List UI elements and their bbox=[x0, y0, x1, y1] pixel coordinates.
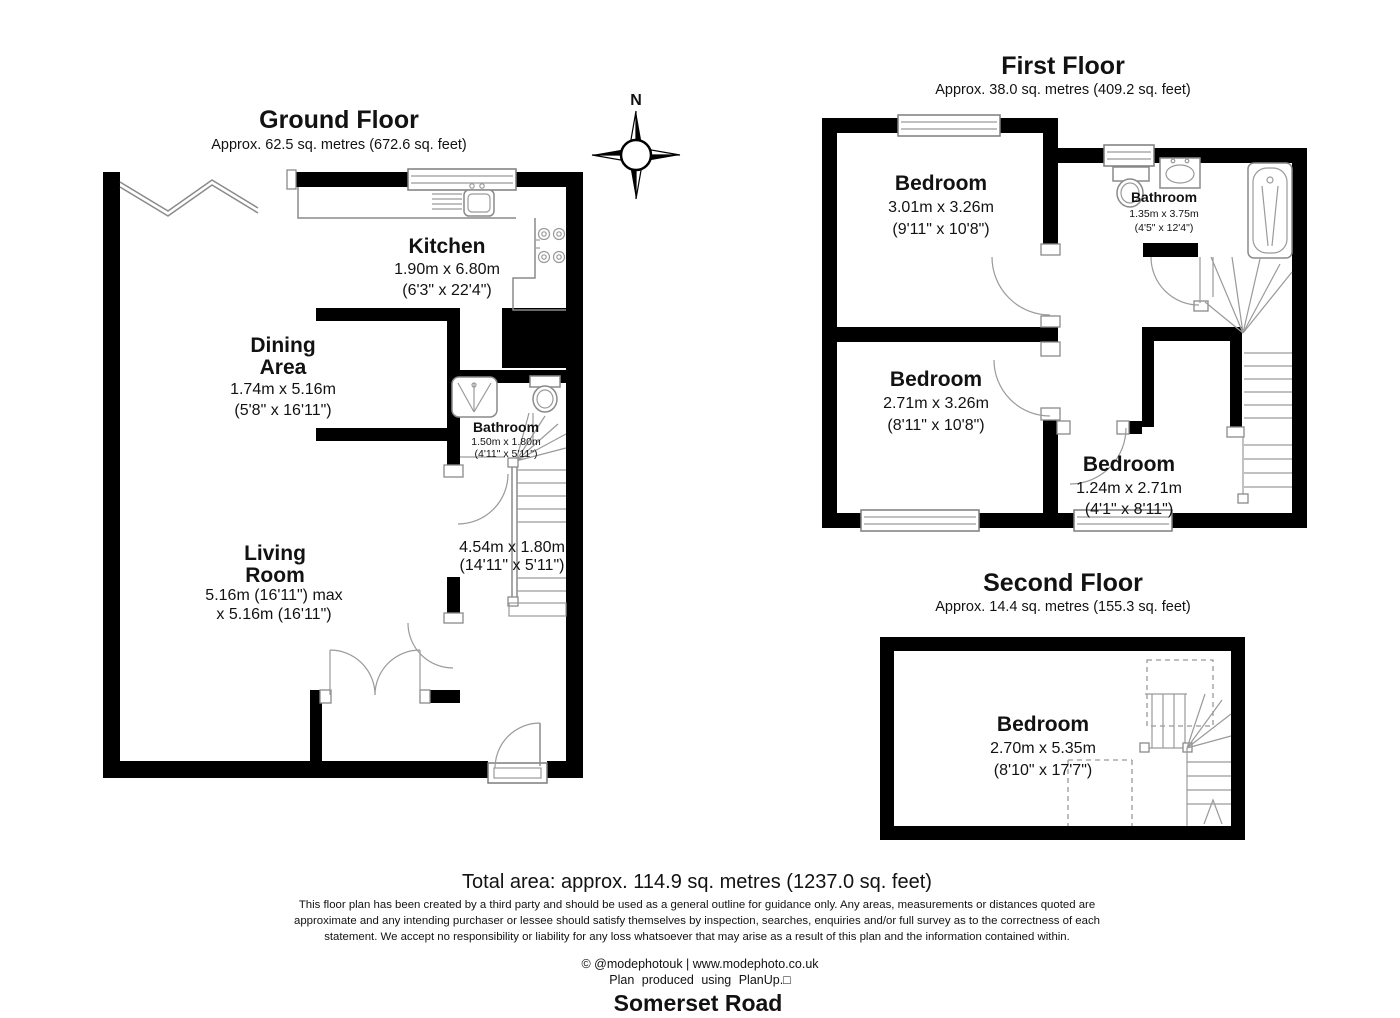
floorplan-page: Ground Floor Approx. 62.5 sq. metres (67… bbox=[0, 0, 1400, 1018]
ff-bathroom-dims-m: 1.35m x 3.75m bbox=[1129, 208, 1199, 220]
hall-door-arc bbox=[458, 474, 508, 524]
ff-bedroom1-name: Bedroom bbox=[895, 172, 987, 195]
ff-bedroom2-dims-m: 2.71m x 3.26m bbox=[883, 395, 989, 412]
hob-icon bbox=[536, 229, 565, 263]
shower-icon bbox=[452, 377, 497, 417]
floorplan-drawing: Ground Floor Approx. 62.5 sq. metres (67… bbox=[0, 0, 1400, 1018]
first-floor-plan: Bedroom 3.01m x 3.26m (9'11" x 10'8") Ba… bbox=[822, 115, 1307, 531]
compass-north-label: N bbox=[630, 92, 642, 109]
disclaimer-line-1: This floor plan has been created by a th… bbox=[299, 899, 1095, 911]
ground-floor-walls bbox=[103, 170, 583, 778]
living-name-2: Room bbox=[245, 564, 305, 587]
ff-bedroom2-dims-ft: (8'11" x 10'8") bbox=[887, 417, 984, 434]
ff-stair-treads bbox=[1244, 353, 1292, 487]
disclaimer-line-2: approximate and any intending purchaser … bbox=[294, 915, 1100, 927]
ground-floor-area: Approx. 62.5 sq. metres (672.6 sq. feet) bbox=[211, 137, 467, 153]
ground-floor-header: Ground Floor Approx. 62.5 sq. metres (67… bbox=[211, 106, 467, 153]
ff-bedroom1-dims-m: 3.01m x 3.26m bbox=[888, 199, 994, 216]
living-dims-ft: x 5.16m (16'11") bbox=[216, 606, 331, 623]
kitchen-dims-ft: (6'3" x 22'4") bbox=[402, 282, 492, 299]
ff-bedroom1-dims-ft: (9'11" x 10'8") bbox=[892, 221, 989, 238]
second-floor-plan: Bedroom 2.70m x 5.35m (8'10" x 17'7") bbox=[880, 637, 1245, 840]
ff-bedroom3-dims-m: 1.24m x 2.71m bbox=[1076, 480, 1182, 497]
kitchen-label: Kitchen 1.90m x 6.80m (6'3" x 22'4") bbox=[394, 235, 500, 299]
second-floor-title: Second Floor bbox=[983, 569, 1143, 597]
first-floor-title: First Floor bbox=[1001, 52, 1125, 80]
gf-doors bbox=[330, 474, 547, 783]
sf-bedroom-name: Bedroom bbox=[997, 713, 1089, 736]
ff-bedroom3-name: Bedroom bbox=[1083, 453, 1175, 476]
living-name-1: Living bbox=[244, 542, 306, 565]
open-boundary-zigzag bbox=[120, 185, 258, 216]
ground-floor-plan: Kitchen 1.90m x 6.80m (6'3" x 22'4") Din… bbox=[103, 169, 583, 783]
gf-bathroom-name: Bathroom bbox=[473, 419, 539, 435]
entrance-door bbox=[488, 723, 547, 783]
hall-dims-m: 4.54m x 1.80m bbox=[459, 539, 565, 556]
sf-staircase bbox=[1140, 694, 1231, 826]
sf-bedroom-dims-ft: (8'10" x 17'7") bbox=[994, 762, 1092, 779]
compass-rose: N bbox=[592, 92, 680, 199]
ff-bedroom3-dims-ft: (4'1" x 8'11") bbox=[1085, 501, 1173, 518]
ff-bedroom2-label: Bedroom 2.71m x 3.26m (8'11" x 10'8") bbox=[883, 368, 989, 434]
bathtub-icon bbox=[1248, 163, 1292, 258]
produced-with-text: Plan produced using PlanUp.□ bbox=[609, 973, 791, 987]
kitchen-window bbox=[408, 169, 516, 190]
ff-bathroom-label: Bathroom 1.35m x 3.75m (4'5" x 12'4") bbox=[1129, 189, 1199, 234]
dining-name-2: Area bbox=[260, 356, 307, 379]
kitchen-dims-m: 1.90m x 6.80m bbox=[394, 261, 500, 278]
sf-bedroom-label: Bedroom 2.70m x 5.35m (8'10" x 17'7") bbox=[990, 713, 1096, 779]
hall-label: 4.54m x 1.80m (14'11" x 5'11") bbox=[459, 539, 565, 574]
restricted-headroom-outline bbox=[1147, 660, 1213, 726]
ff-doors bbox=[992, 257, 1199, 484]
disclaimer-line-3: statement. We accept no responsibility o… bbox=[324, 931, 1070, 943]
gf-bathroom-dims-m: 1.50m x 1.80m bbox=[471, 436, 541, 448]
dining-area-label: Dining Area 1.74m x 5.16m (5'8" x 16'11"… bbox=[230, 334, 336, 419]
ground-floor-title: Ground Floor bbox=[259, 106, 419, 134]
ff-bathroom-name: Bathroom bbox=[1131, 189, 1197, 205]
lobby-door-arc bbox=[408, 623, 453, 668]
sf-stair-treads bbox=[1187, 762, 1231, 804]
address-title: Somerset Road bbox=[614, 990, 783, 1016]
toilet-icon bbox=[530, 376, 560, 412]
ff-bedroom1-door-arc bbox=[992, 257, 1050, 315]
dining-name-1: Dining bbox=[250, 334, 315, 357]
second-floor-header: Second Floor Approx. 14.4 sq. metres (15… bbox=[935, 569, 1191, 615]
first-floor-header: First Floor Approx. 38.0 sq. metres (409… bbox=[935, 52, 1191, 98]
ff-bedroom3-label: Bedroom 1.24m x 2.71m (4'1" x 8'11") bbox=[1076, 453, 1182, 518]
gf-bathroom-dims-ft: (4'11" x 5'11") bbox=[474, 448, 537, 460]
dining-dims-m: 1.74m x 5.16m bbox=[230, 381, 336, 398]
compass-circle bbox=[621, 140, 651, 170]
living-room-label: Living Room 5.16m (16'11") max x 5.16m (… bbox=[205, 542, 342, 623]
second-floor-area: Approx. 14.4 sq. metres (155.3 sq. feet) bbox=[935, 599, 1191, 615]
hall-dims-ft: (14'11" x 5'11") bbox=[460, 557, 565, 574]
credit-text: © @modephotouk | www.modephoto.co.uk bbox=[581, 957, 819, 971]
first-floor-area: Approx. 38.0 sq. metres (409.2 sq. feet) bbox=[935, 82, 1191, 98]
footer: Total area: approx. 114.9 sq. metres (12… bbox=[294, 871, 1100, 1016]
dining-dims-ft: (5'8" x 16'11") bbox=[234, 402, 331, 419]
ff-bathroom-dims-ft: (4'5" x 12'4") bbox=[1135, 222, 1194, 234]
french-doors bbox=[330, 650, 420, 695]
ff-bedroom2-name: Bedroom bbox=[890, 368, 982, 391]
sink-icon bbox=[1160, 158, 1200, 188]
ff-staircase bbox=[1200, 257, 1292, 503]
ff-bathroom-door-arc bbox=[1151, 257, 1199, 305]
gf-bathroom-label: Bathroom 1.50m x 1.80m (4'11" x 5'11") bbox=[471, 419, 541, 460]
ff-bedroom1-label: Bedroom 3.01m x 3.26m (9'11" x 10'8") bbox=[888, 172, 994, 238]
sf-bedroom-dims-m: 2.70m x 5.35m bbox=[990, 740, 1096, 757]
chimney-block bbox=[502, 308, 572, 368]
living-dims-m: 5.16m (16'11") max bbox=[205, 587, 342, 604]
kitchen-name: Kitchen bbox=[408, 235, 485, 258]
total-area-text: Total area: approx. 114.9 sq. metres (12… bbox=[462, 871, 932, 893]
open-boundary-zigzag bbox=[120, 180, 258, 211]
